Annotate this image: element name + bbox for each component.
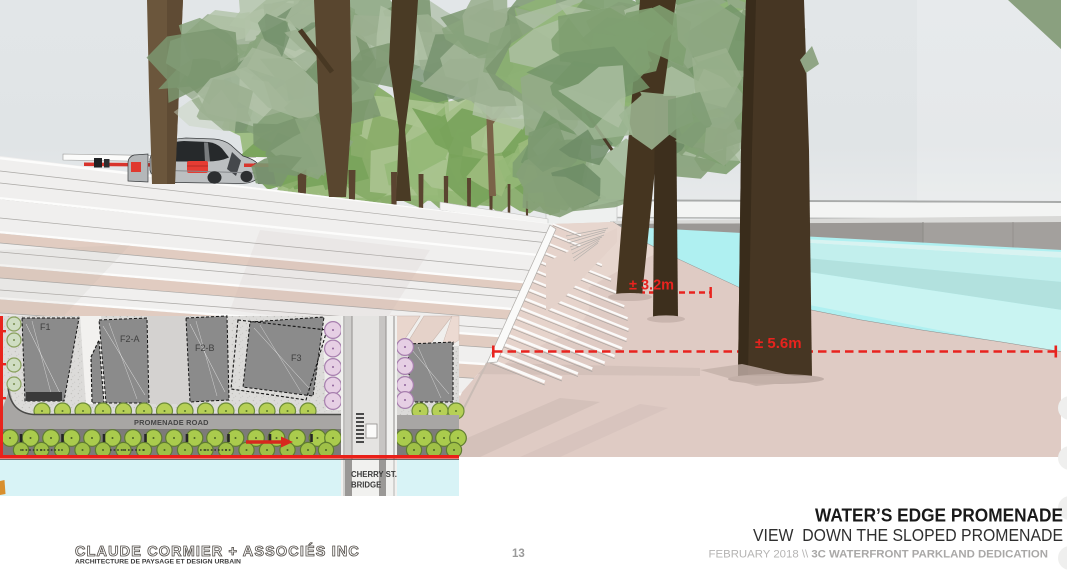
svg-text:ARCHITECTURE DE PAYSAGE ET DES: ARCHITECTURE DE PAYSAGE ET DESIGN URBAIN [75, 559, 242, 566]
svg-text:± 3.2m: ± 3.2m [629, 278, 674, 294]
svg-text:F3: F3 [291, 353, 302, 363]
svg-text:13: 13 [512, 548, 525, 560]
svg-text:FEBRUARY 2018 \\ 3C WATERFRONT: FEBRUARY 2018 \\ 3C WATERFRONT PARKLAND … [709, 549, 1048, 561]
svg-text:± 5.6m: ± 5.6m [755, 335, 802, 352]
svg-text:F1: F1 [40, 322, 51, 332]
svg-text:CLAUDE CORMIER + ASSOCIÉS INC: CLAUDE CORMIER + ASSOCIÉS INC [75, 543, 360, 560]
svg-text:PROMENADE ROAD: PROMENADE ROAD [134, 418, 209, 427]
svg-text:CHERRY ST.: CHERRY ST. [351, 470, 397, 479]
svg-text:F2-A: F2-A [120, 334, 140, 344]
svg-text:VIEW DOWN THE SLOPED PROMENAD: VIEW DOWN THE SLOPED PROMENADE [753, 525, 1063, 545]
svg-text:BRIDGE: BRIDGE [351, 481, 381, 490]
svg-text:F2-B: F2-B [195, 343, 215, 353]
svg-text:WATER’S EDGE PROMENADE: WATER’S EDGE PROMENADE [815, 506, 1063, 526]
